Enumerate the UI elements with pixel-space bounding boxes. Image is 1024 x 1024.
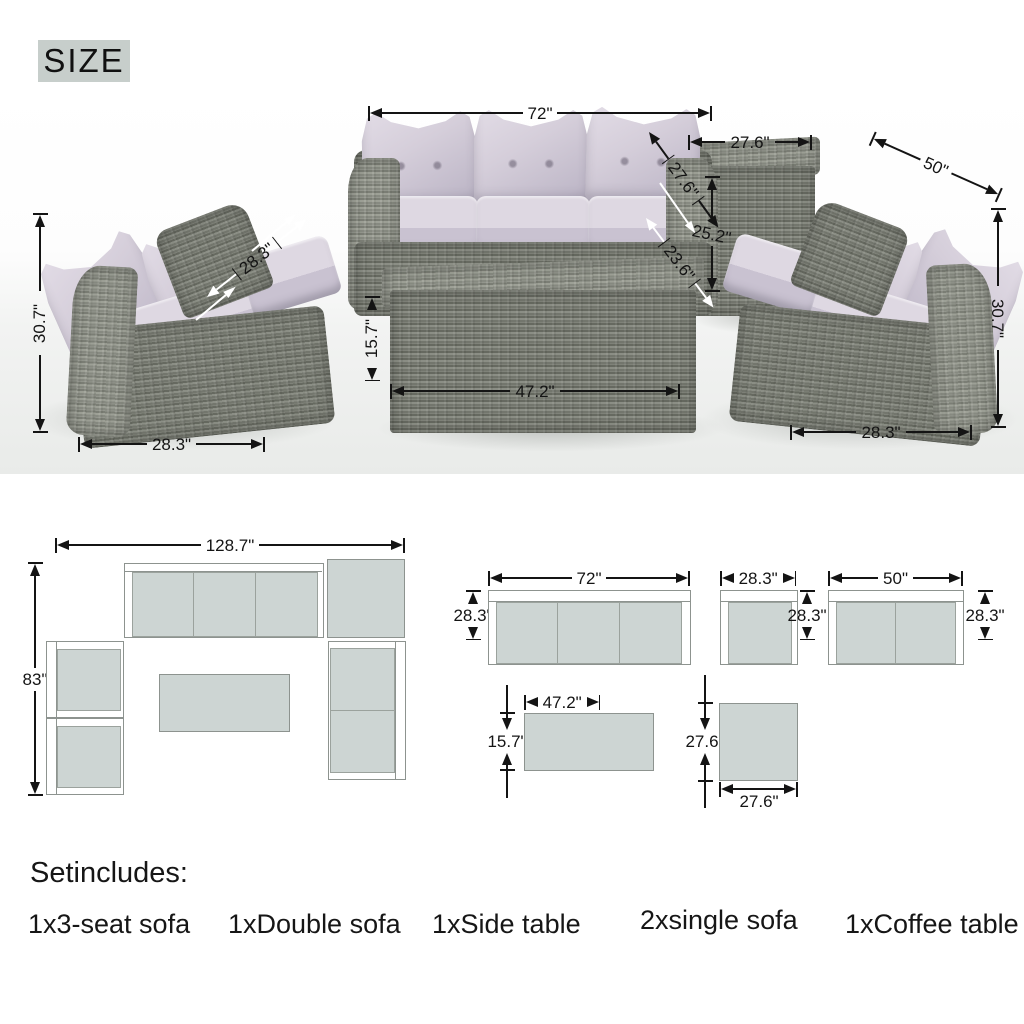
dim-tick [698, 702, 713, 704]
dim-unit-27-6in-left: 27.6" [695, 675, 715, 808]
plan-cushion [557, 602, 620, 664]
plan-cushion [193, 572, 256, 637]
dim-128-7in: 128.7" [55, 537, 405, 553]
plan-cushion [895, 602, 956, 664]
dim-unit-27-6in-bottom-label: 27.6" [722, 792, 796, 812]
dim-unit-28-3in-top: 28.3" [720, 570, 797, 586]
plan-cushion [728, 602, 792, 664]
include-item-single: 2xsingle sofa [640, 905, 798, 936]
plan-cushion [619, 602, 682, 664]
dim-unit-50in: 50" [828, 570, 963, 586]
dim-25-2in: 25.2" [702, 176, 722, 292]
size-badge: SIZE [38, 40, 130, 82]
dim-72in: 72" [368, 105, 712, 121]
dim-30-7in-right: 30.7" [988, 208, 1008, 428]
dim-unit-28-3in-single-right: 28.3" [797, 590, 817, 665]
plan-cushion [132, 572, 194, 637]
dim-tick [698, 780, 713, 782]
dim-30-7in-left: 30.7" [30, 213, 50, 433]
dim-28-3in-right-bottom: 28.3" [790, 424, 972, 440]
size-badge-label: SIZE [43, 42, 124, 80]
single-sofas-left [48, 142, 336, 442]
include-item-3seat: 1x3-seat sofa [28, 909, 190, 940]
dim-unit-47-2in: 47.2" [524, 694, 654, 710]
size-infographic: SIZE [0, 0, 1024, 1024]
dim-unit-15-7in: 15.7" [497, 685, 517, 798]
dim-28-3in-left-bottom: 28.3" [78, 436, 265, 452]
include-item-coffee-table: 1xCoffee table [845, 909, 1019, 940]
include-item-side-table: 1xSide table [432, 909, 581, 940]
plan-cushion [836, 602, 896, 664]
dim-unit-28-3in-left: 28.3" [463, 590, 483, 665]
plan-unit-coffee [524, 713, 654, 771]
plan-cushion [330, 710, 395, 773]
dim-27-6in-side-table: 27.6" [688, 134, 812, 150]
plan-cushion [255, 572, 318, 637]
plan-cushion [57, 726, 121, 788]
plan-unit-side [719, 703, 798, 781]
coffee-table [382, 260, 704, 435]
plan-cushion [330, 648, 395, 711]
includes-heading: Setincludes: [30, 857, 188, 890]
plan-divider [395, 642, 396, 779]
dim-tick [500, 769, 515, 771]
product-photo-section: 72" 27.6" 50" 27.6" 25.2" 23.6" 28.3" 30… [0, 88, 1024, 474]
dim-47-2in: 47.2" [390, 383, 680, 399]
coffee-table-body [390, 290, 696, 433]
floor-plan-section: 128.7" 83" 72" 28.3" [0, 520, 1024, 840]
include-item-double: 1xDouble sofa [228, 909, 401, 940]
back-cushion [474, 110, 588, 206]
plan-cushion [57, 649, 121, 711]
plan-side-table [327, 559, 405, 638]
set-includes-section: Setincludes: 1x3-seat sofa 1xDouble sofa… [0, 845, 1024, 1024]
dim-15-7in: 15.7" [362, 296, 382, 374]
plan-coffee-table [159, 674, 290, 732]
sofa-arm [66, 264, 139, 437]
dim-unit-28-3in-double-right: 28.3" [975, 590, 995, 665]
dim-tick [500, 712, 515, 714]
dim-unit-72in: 72" [488, 570, 690, 586]
dim-83in: 83" [25, 562, 45, 796]
plan-cushion [496, 602, 558, 664]
